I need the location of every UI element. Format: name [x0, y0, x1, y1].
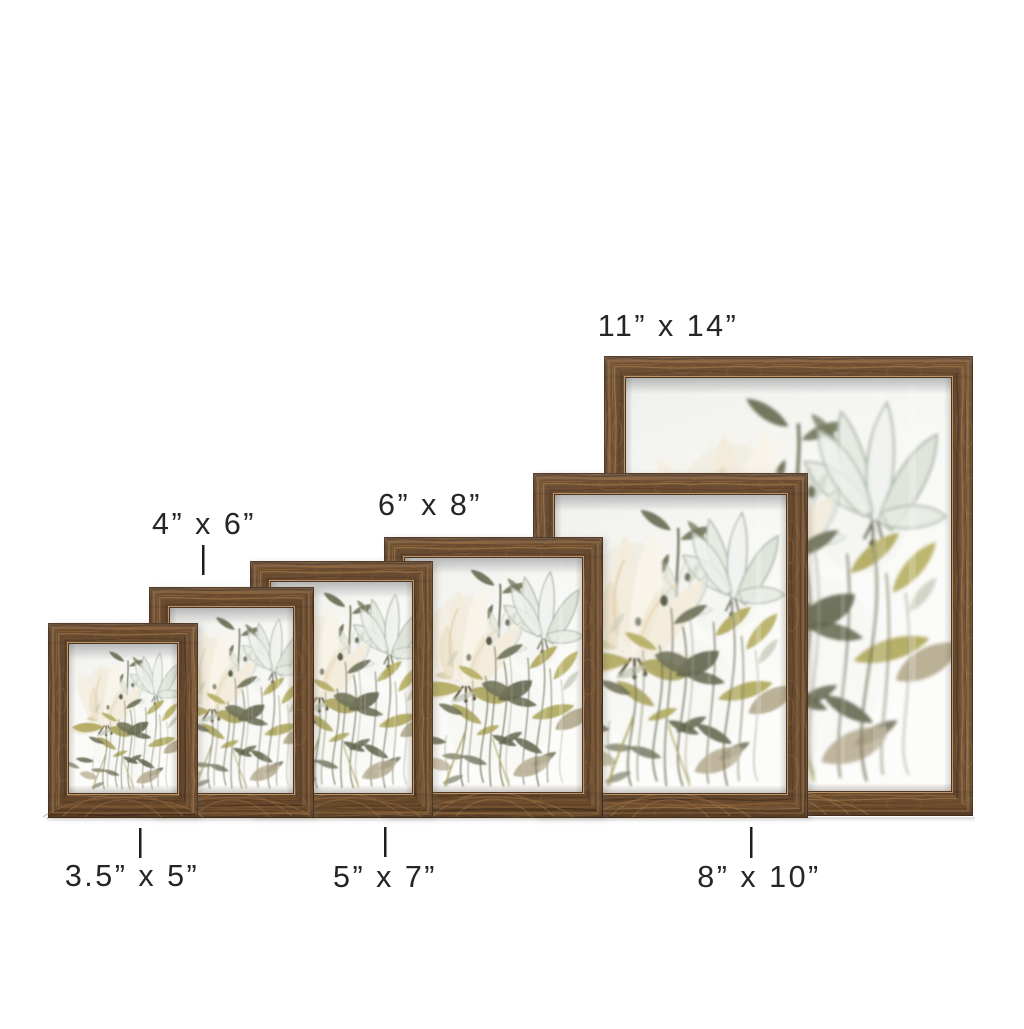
svg-text:6” x 8”: 6” x 8”	[378, 488, 482, 522]
svg-text:5” x 7”: 5” x 7”	[333, 860, 437, 894]
svg-text:8” x 10”: 8” x 10”	[697, 860, 820, 894]
svg-text:4” x 6”: 4” x 6”	[152, 507, 256, 541]
svg-text:11” x 14”: 11” x 14”	[598, 309, 739, 343]
svg-text:3.5” x 5”: 3.5” x 5”	[65, 859, 199, 893]
